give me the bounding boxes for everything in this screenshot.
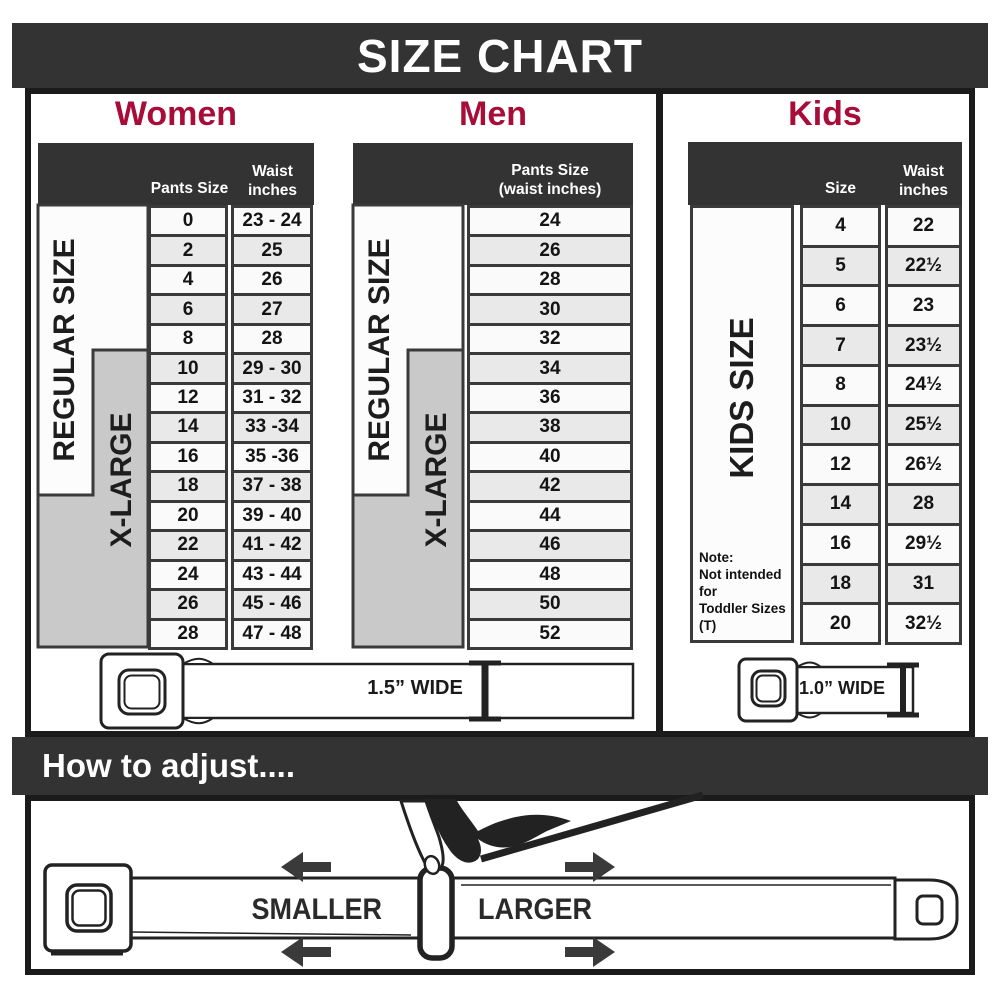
kids-waist-cell: 23½ [888, 327, 959, 364]
kids-size-cell: 8 [803, 367, 878, 404]
women-waist-cell: 39 - 40 [234, 503, 310, 529]
women-waist-cell: 45 - 46 [234, 591, 310, 617]
kids-waist-cell: 22 [888, 208, 959, 245]
men-pants-size-cell: 50 [470, 591, 630, 617]
men-pants-size-cell: 36 [470, 385, 630, 411]
kids-waist-cell: 26½ [888, 446, 959, 483]
women-waist-header: Waist inches [231, 162, 314, 200]
women-waist-cell: 37 - 38 [234, 473, 310, 499]
women-pants-size-cell: 26 [151, 591, 225, 617]
kids-belt-width-label: 1.0” WIDE [782, 678, 902, 699]
page-title: SIZE CHART [12, 23, 988, 88]
men-pants-size-cell: 40 [470, 444, 630, 470]
women-pants-size-cell: 6 [151, 296, 225, 322]
kids-size-cell: 10 [803, 407, 878, 444]
men-table-header: Pants Size (waist inches) [353, 143, 633, 205]
women-waist-cell: 26 [234, 267, 310, 293]
kids-waist-cell: 29½ [888, 526, 959, 563]
size-chart-page: SIZE CHART Women Men Kids Pants Size Wai… [0, 0, 1000, 1000]
kids-heading: Kids [688, 95, 962, 134]
kids-waist-cell: 22½ [888, 248, 959, 285]
women-pants-size-cell: 2 [151, 237, 225, 263]
women-pants-size-cell: 8 [151, 326, 225, 352]
kids-size-cell: 7 [803, 327, 878, 364]
kids-waist-column: 2222½2323½24½25½26½2829½3132½ [885, 205, 962, 645]
women-pants-size-cell: 28 [151, 621, 225, 647]
women-pants-size-cell: 10 [151, 355, 225, 381]
women-table-header: Pants Size Waist inches [38, 143, 314, 205]
kids-waist-cell: 25½ [888, 407, 959, 444]
women-xlarge-label: X-LARGE [94, 350, 150, 610]
kids-size-cell: 4 [803, 208, 878, 245]
men-pants-size-column: 242628303234363840424446485052 [467, 205, 633, 650]
kids-size-cell: 6 [803, 287, 878, 324]
men-pants-size-cell: 42 [470, 473, 630, 499]
men-pants-size-cell: 24 [470, 208, 630, 234]
kids-size-column: 45678101214161820 [800, 205, 881, 645]
seatbelt-buckle-icon [45, 865, 131, 954]
smaller-label: SMALLER [252, 893, 369, 927]
women-pants-size-cell: 20 [151, 503, 225, 529]
women-waist-cell: 29 - 30 [234, 355, 310, 381]
men-pants-size-cell: 28 [470, 267, 630, 293]
kids-table-header: Size Waist inches [688, 142, 962, 205]
arrow-right-icon [565, 937, 615, 967]
men-pants-size-cell: 30 [470, 296, 630, 322]
men-pants-size-header: Pants Size (waist inches) [467, 161, 633, 199]
kids-size-cell: 20 [803, 605, 878, 642]
women-pants-size-column: 0246810121416182022242628 [148, 205, 228, 650]
how-to-adjust-heading: How to adjust.... [12, 737, 988, 795]
kids-size-cell: 12 [803, 446, 878, 483]
kids-size-label: KIDS SIZE [723, 317, 761, 478]
men-pants-size-cell: 34 [470, 355, 630, 381]
women-pants-size-cell: 14 [151, 414, 225, 440]
kids-size-cell: 18 [803, 566, 878, 603]
men-pants-size-cell: 38 [470, 414, 630, 440]
women-waist-column: 23 - 242526272829 - 3031 - 3233 -3435 -3… [231, 205, 313, 650]
belt-tip-icon [895, 880, 957, 939]
women-pants-size-header: Pants Size [148, 179, 231, 198]
kids-waist-cell: 23 [888, 287, 959, 324]
panel-divider [656, 88, 663, 737]
kids-size-header: Size [800, 179, 881, 198]
women-regular-size-label: REGULAR SIZE [36, 205, 94, 495]
adjust-illustration [31, 801, 969, 969]
arrow-left-icon [281, 937, 331, 967]
kids-waist-header: Waist inches [885, 162, 962, 200]
women-pants-size-cell: 4 [151, 267, 225, 293]
women-waist-cell: 47 - 48 [234, 621, 310, 647]
men-pants-size-cell: 52 [470, 621, 630, 647]
women-waist-cell: 23 - 24 [234, 208, 310, 234]
belt-adjuster [420, 868, 452, 958]
women-waist-cell: 35 -36 [234, 444, 310, 470]
hand-icon [401, 795, 703, 876]
women-waist-cell: 27 [234, 296, 310, 322]
women-waist-cell: 41 - 42 [234, 532, 310, 558]
women-waist-cell: 25 [234, 237, 310, 263]
women-waist-cell: 31 - 32 [234, 385, 310, 411]
kids-size-block: KIDS SIZE Note: Not intended for Toddler… [690, 205, 794, 643]
kids-waist-cell: 32½ [888, 605, 959, 642]
men-pants-size-cell: 32 [470, 326, 630, 352]
women-pants-size-cell: 24 [151, 562, 225, 588]
men-pants-size-cell: 44 [470, 503, 630, 529]
women-pants-size-cell: 22 [151, 532, 225, 558]
women-pants-size-cell: 0 [151, 208, 225, 234]
kids-waist-cell: 24½ [888, 367, 959, 404]
women-pants-size-cell: 12 [151, 385, 225, 411]
larger-label: LARGER [477, 893, 594, 927]
kids-size-cell: 16 [803, 526, 878, 563]
women-pants-size-cell: 18 [151, 473, 225, 499]
kids-size-cell: 14 [803, 486, 878, 523]
adult-belt-width-label: 1.5” WIDE [350, 677, 480, 700]
women-heading: Women [38, 95, 314, 134]
women-waist-cell: 43 - 44 [234, 562, 310, 588]
kids-waist-cell: 31 [888, 566, 959, 603]
women-waist-cell: 28 [234, 326, 310, 352]
women-pants-size-cell: 16 [151, 444, 225, 470]
men-heading: Men [353, 95, 633, 134]
men-xlarge-label: X-LARGE [409, 350, 465, 610]
men-pants-size-cell: 48 [470, 562, 630, 588]
kids-note: Note: Not intended for Toddler Sizes (T) [699, 549, 791, 634]
women-waist-cell: 33 -34 [234, 414, 310, 440]
men-pants-size-cell: 46 [470, 532, 630, 558]
men-regular-size-label: REGULAR SIZE [351, 205, 409, 495]
men-pants-size-cell: 26 [470, 237, 630, 263]
kids-waist-cell: 28 [888, 486, 959, 523]
kids-size-cell: 5 [803, 248, 878, 285]
